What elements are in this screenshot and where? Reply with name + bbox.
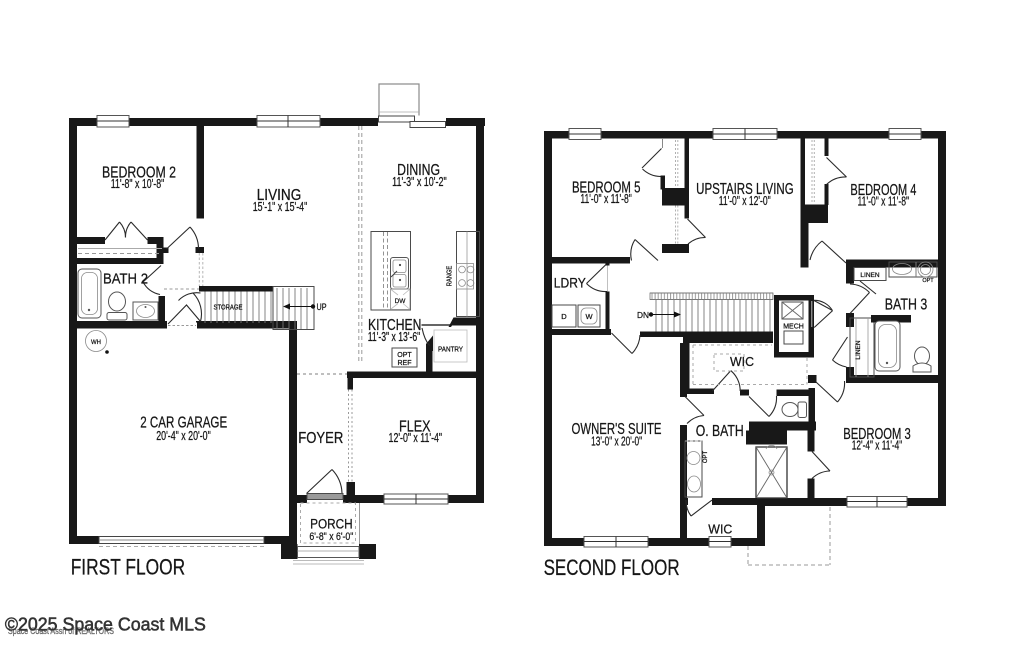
svg-text:OPT: OPT [397,352,412,359]
svg-text:MECH: MECH [783,324,804,331]
svg-text:12'-0" x 11'-4": 12'-0" x 11'-4" [389,431,443,445]
svg-text:BATH 2: BATH 2 [103,271,148,288]
svg-text:WIC: WIC [730,354,754,369]
svg-text:D: D [561,312,567,321]
svg-text:11'-0" x 11'-8": 11'-0" x 11'-8" [858,195,910,209]
svg-text:BATH 3: BATH 3 [885,297,928,314]
svg-text:RANGE: RANGE [447,265,454,286]
svg-text:UP: UP [317,302,327,312]
svg-text:20'-4" x 20'-0": 20'-4" x 20'-0" [156,429,211,443]
svg-text:LINEN: LINEN [855,340,862,359]
svg-text:OPT: OPT [703,451,709,464]
svg-text:WH: WH [91,340,101,346]
svg-text:12'-4" x 11'-4": 12'-4" x 11'-4" [852,439,903,453]
svg-text:OPT: OPT [922,278,934,284]
svg-text:11'-8" x 10'-8": 11'-8" x 10'-8" [111,177,165,191]
svg-text:SECOND FLOOR: SECOND FLOOR [544,555,680,580]
svg-text:FOYER: FOYER [298,430,343,447]
svg-text:©2025 Space Coast MLS: ©2025 Space Coast MLS [5,614,206,635]
svg-text:11'-0" x 11'-8": 11'-0" x 11'-8" [580,192,632,206]
svg-text:PANTRY: PANTRY [438,347,463,354]
svg-text:11'-0" x 12'-0": 11'-0" x 12'-0" [719,194,771,208]
svg-text:O. BATH: O. BATH [696,423,744,440]
svg-text:REF: REF [398,360,412,367]
svg-text:LDRY: LDRY [554,275,587,291]
svg-text:FIRST FLOOR: FIRST FLOOR [71,555,185,580]
svg-text:PORCH: PORCH [310,517,353,532]
svg-text:DW: DW [395,298,407,305]
svg-text:W: W [585,312,593,321]
svg-text:DN: DN [637,310,649,320]
svg-text:WIC: WIC [708,521,732,536]
svg-text:13'-0" x 20'-0": 13'-0" x 20'-0" [591,435,642,449]
svg-text:STORAGE: STORAGE [214,305,243,312]
svg-text:11'-3" x 13'-6": 11'-3" x 13'-6" [368,330,421,344]
svg-text:LINEN: LINEN [860,272,879,279]
svg-text:15'-1" x 15'-4": 15'-1" x 15'-4" [253,200,308,214]
svg-text:11'-3" x 10'-2": 11'-3" x 10'-2" [392,175,447,189]
svg-text:6'-8" x 6'-0": 6'-8" x 6'-0" [309,531,353,543]
